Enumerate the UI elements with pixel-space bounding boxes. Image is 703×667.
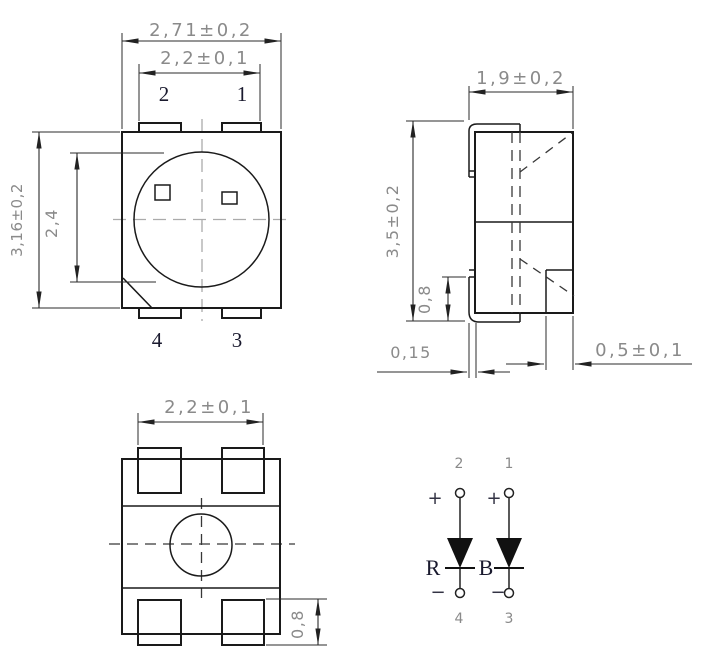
dim-side-lead-standoff-lines <box>442 277 466 321</box>
dim-front-pad-span: 2,2±0,1 <box>160 48 250 69</box>
bottom-view: 2,2±0,1 0,8 <box>109 397 327 645</box>
pin-label-front-1: 1 <box>237 82 248 106</box>
terminal-circle-pin2 <box>456 489 465 498</box>
front-tab-top-left <box>139 123 181 132</box>
chip-left <box>155 185 170 200</box>
dim-front-outer-width: 2,71±0,2 <box>149 20 253 41</box>
pin-label-front-3: 3 <box>232 328 243 352</box>
diode-label-red: R <box>426 555 441 580</box>
schematic-pin-3: 3 <box>505 611 514 627</box>
pin-label-front-4: 4 <box>152 328 163 352</box>
minus-sign-right: − <box>490 582 505 603</box>
dim-side-overall-height: 3,5±0,2 <box>383 184 402 259</box>
front-tab-top-right <box>222 123 261 132</box>
dim-side-body-width-lines <box>469 86 573 129</box>
minus-sign-left: − <box>430 582 445 603</box>
schematic-pin-1: 1 <box>505 456 514 472</box>
dim-bottom-pad-height: 0,8 <box>288 609 307 639</box>
hidden-diagonal-top <box>520 133 572 172</box>
bottom-pad-bottom-right <box>222 600 264 645</box>
diode-label-blue: B <box>479 555 494 580</box>
dim-side-pad-width: 0,5±0,1 <box>595 340 685 361</box>
terminal-circle-pin1 <box>505 489 514 498</box>
schematic: 2 1 4 3 + + − − R B <box>426 456 524 627</box>
dim-bottom-pad-span: 2,2±0,1 <box>164 397 254 418</box>
chip-right <box>222 192 237 204</box>
dim-side-lead-thickness: 0,15 <box>390 343 432 362</box>
dim-front-lens-diameter: 2,4 <box>42 208 61 238</box>
side-view: 1,9±0,2 3,5±0,2 0,8 0,15 0,5±0,1 <box>377 68 692 378</box>
schematic-pin-2: 2 <box>455 456 464 472</box>
terminal-circle-pin3 <box>505 589 514 598</box>
diode-left-triangle <box>447 538 473 568</box>
side-cathode-pad <box>546 270 573 313</box>
front-view: 2,71±0,2 2,2±0,1 3,16±0,2 2,4 2 1 4 3 <box>8 20 289 352</box>
bottom-pad-bottom-left <box>138 600 181 645</box>
dim-side-body-width: 1,9±0,2 <box>476 68 566 89</box>
technical-drawing-svg: 2,71±0,2 2,2±0,1 3,16±0,2 2,4 2 1 4 3 <box>0 0 703 667</box>
diode-right-triangle <box>496 538 522 568</box>
hidden-diagonal-bottom <box>520 259 574 296</box>
plus-sign-left: + <box>427 488 442 509</box>
pin-label-front-2: 2 <box>159 82 170 106</box>
bottom-pad-top-left <box>138 448 181 493</box>
drawing-canvas: 2,71±0,2 2,2±0,1 3,16±0,2 2,4 2 1 4 3 <box>0 0 703 667</box>
front-tab-bottom-right <box>222 308 261 318</box>
front-tab-bottom-left <box>139 308 181 318</box>
schematic-pin-4: 4 <box>455 611 464 627</box>
terminal-circle-pin4 <box>456 589 465 598</box>
dim-front-overall-height: 3,16±0,2 <box>8 183 26 257</box>
plus-sign-right: + <box>486 488 501 509</box>
dim-side-lead-standoff: 0,8 <box>415 284 434 314</box>
bottom-body-outline <box>122 459 280 634</box>
bottom-pad-top-right <box>222 448 264 493</box>
